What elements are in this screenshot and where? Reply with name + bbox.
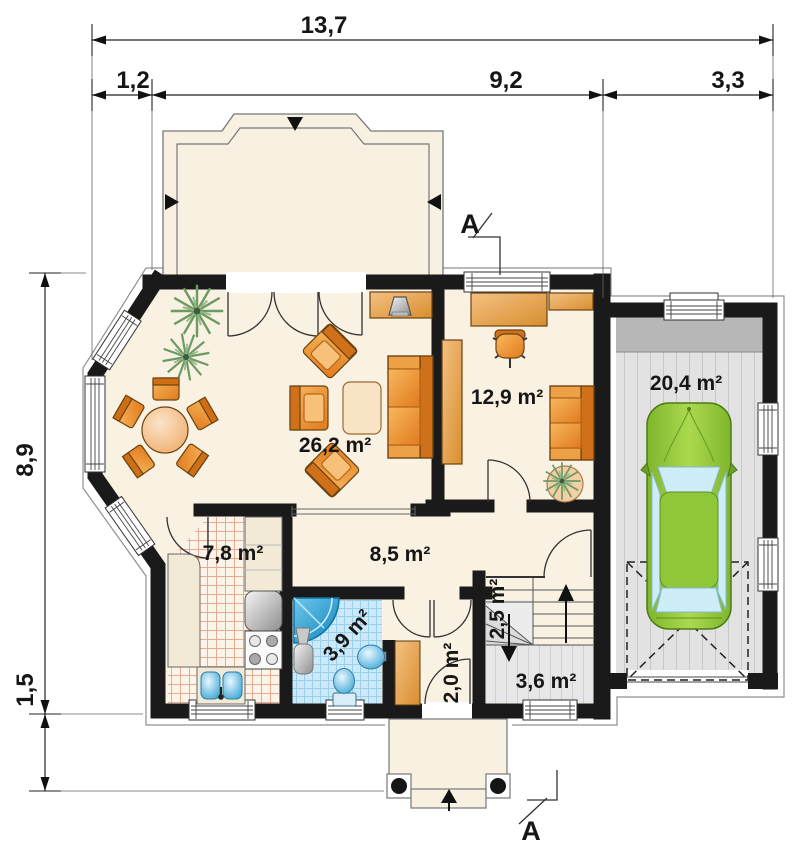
garage-right-window-1 [758, 403, 778, 455]
section-marker-bottom: A [519, 770, 557, 846]
garage-top-window [664, 293, 724, 320]
entry-cabinet [395, 641, 420, 705]
dim-height-1: 8,9 [12, 443, 39, 476]
section-marker-top: A [460, 209, 500, 275]
car-roof [660, 492, 718, 588]
porch [387, 719, 510, 811]
porch-column [490, 778, 506, 794]
study-sofa [550, 386, 594, 460]
dining-chair [153, 378, 179, 400]
rear-window [656, 588, 722, 612]
shelf [549, 293, 593, 310]
terrace [163, 114, 443, 278]
kitchen-area: 7,8 m² [203, 542, 264, 565]
vestibule-area: 3,6 m² [516, 670, 577, 693]
vestibule-window [523, 700, 577, 720]
dim-seg-1: 1,2 [116, 67, 149, 94]
dim-height-2: 1,5 [12, 673, 39, 706]
dim-seg-3: 3,3 [711, 67, 744, 94]
tv-stand [370, 292, 432, 318]
bay-left-window [85, 376, 105, 472]
living-room-area: 26,2 m² [299, 434, 371, 457]
section-label: A [521, 816, 541, 846]
fridge [245, 591, 282, 631]
sofa [388, 356, 433, 458]
floor-plan-page: 13,7 1,2 9,2 3,3 8,9 1,5 A A [0, 0, 800, 857]
wardrobe [442, 340, 462, 464]
windshield [658, 467, 720, 494]
coffee-table [343, 382, 381, 434]
dim-total-width: 13,7 [301, 12, 348, 39]
stairs-area: 2,5 m² [486, 579, 509, 640]
armchair [290, 386, 328, 430]
kitchen-counter [168, 554, 200, 667]
dining-table [142, 407, 188, 453]
car [641, 403, 737, 629]
study-window [464, 272, 550, 292]
floor-plan-canvas: 13,7 1,2 9,2 3,3 8,9 1,5 A A [0, 0, 800, 857]
kitchen-sink [197, 667, 245, 704]
entry-area: 2,0 m² [440, 643, 463, 704]
hall-area: 8,5 m² [370, 543, 431, 566]
dim-seg-2: 9,2 [489, 67, 522, 94]
porch-column [391, 778, 407, 794]
study-area: 12,9 m² [471, 386, 543, 409]
desk [471, 293, 547, 326]
section-label: A [460, 209, 480, 239]
stove [245, 631, 282, 669]
garage-right-window-2 [758, 538, 778, 591]
garage-apron [616, 316, 764, 352]
garage-area: 20,4 m² [650, 372, 722, 395]
toilet [333, 669, 356, 707]
